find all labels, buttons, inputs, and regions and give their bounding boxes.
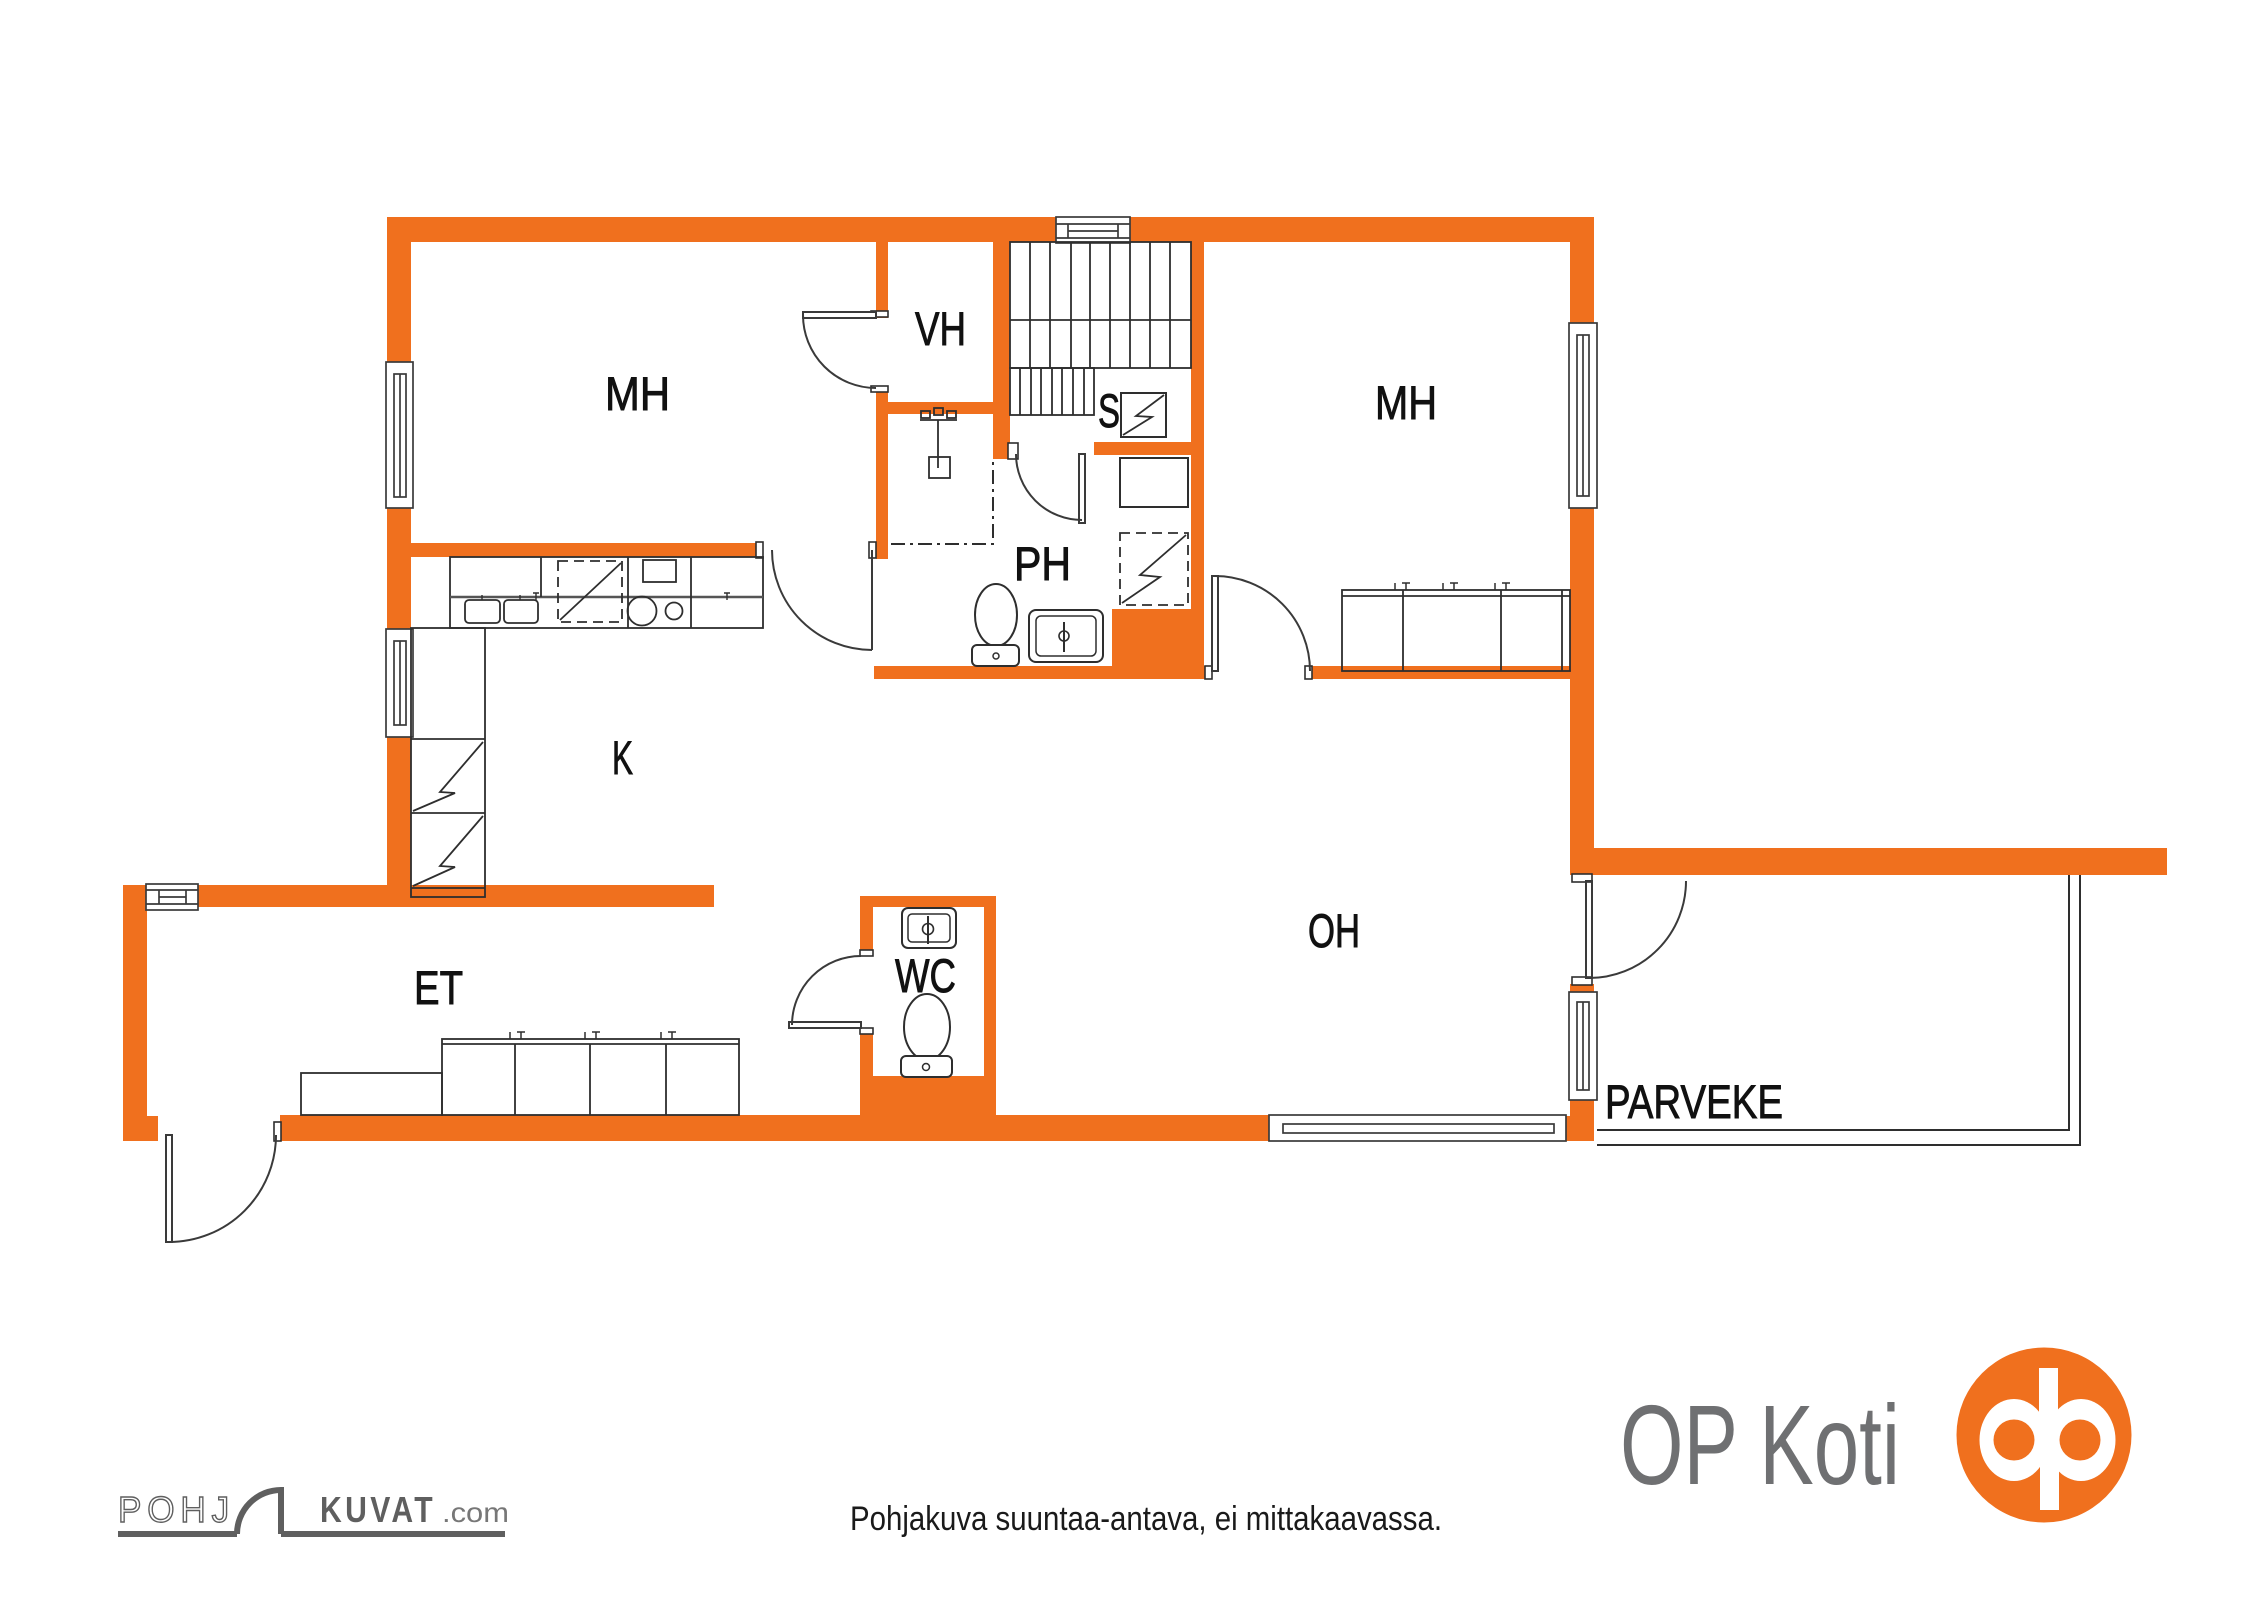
svg-text:Pohjakuva suuntaa-antava, ei m: Pohjakuva suuntaa-antava, ei mittakaavas… bbox=[850, 1500, 1442, 1538]
svg-text:ET: ET bbox=[414, 961, 463, 1014]
svg-text:S: S bbox=[1098, 384, 1120, 437]
svg-text:K: K bbox=[612, 731, 633, 784]
svg-text:WC: WC bbox=[895, 949, 956, 1002]
svg-text:MH: MH bbox=[605, 367, 670, 420]
svg-text:.com: .com bbox=[442, 1497, 509, 1528]
svg-text:PH: PH bbox=[1014, 537, 1071, 590]
svg-text:KUVAT: KUVAT bbox=[320, 1489, 436, 1530]
svg-text:OP Koti: OP Koti bbox=[1620, 1382, 1900, 1508]
svg-text:VH: VH bbox=[915, 302, 966, 355]
svg-text:PARVEKE: PARVEKE bbox=[1605, 1075, 1783, 1128]
svg-text:OH: OH bbox=[1308, 904, 1360, 957]
svg-text:POHJ: POHJ bbox=[118, 1489, 235, 1530]
svg-text:MH: MH bbox=[1375, 376, 1437, 429]
